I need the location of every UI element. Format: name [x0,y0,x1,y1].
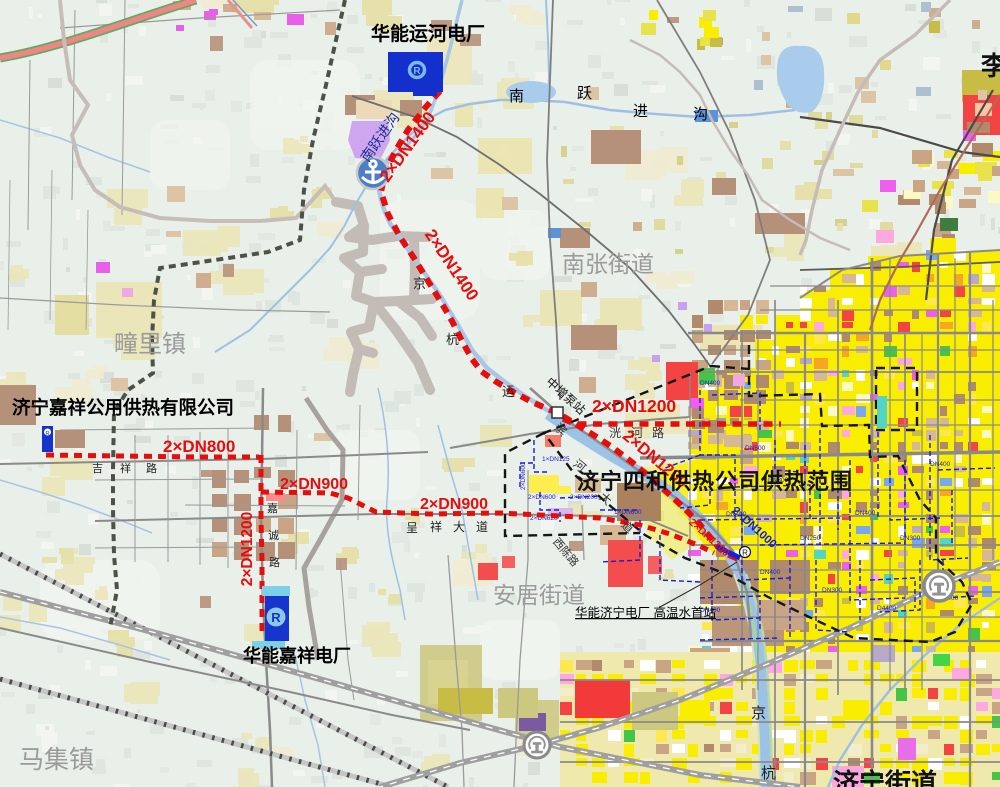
svg-text:路: 路 [269,556,280,569]
svg-text:路: 路 [146,462,157,475]
svg-text:运: 运 [502,384,515,399]
svg-text:京: 京 [751,705,766,722]
svg-text:1×DN600: 1×DN600 [614,509,642,516]
svg-text:济宁街道: 济宁街道 [833,768,937,787]
svg-text:疃里镇: 疃里镇 [114,331,186,358]
svg-text:DN400: DN400 [930,461,951,468]
svg-text:华能济宁电厂 高温水首站: 华能济宁电厂 高温水首站 [575,605,716,620]
svg-text:大: 大 [453,520,465,534]
svg-text:1×DN125: 1×DN125 [542,456,570,463]
svg-text:呈: 呈 [406,521,418,535]
svg-text:DN400: DN400 [855,510,876,517]
svg-text:DN400: DN400 [760,569,781,576]
svg-text:诚: 诚 [268,529,279,542]
svg-text:河: 河 [631,426,643,440]
svg-text:R: R [413,66,421,77]
svg-text:路: 路 [652,425,664,440]
svg-text:济宁四和供热公司供热范围: 济宁四和供热公司供热范围 [577,469,853,494]
svg-text:杭: 杭 [446,332,459,347]
svg-text:道: 道 [476,520,488,534]
svg-text:李: 李 [980,51,1000,81]
svg-text:沟: 沟 [693,106,708,123]
svg-text:济宁嘉祥公用供热有限公司: 济宁嘉祥公用供热有限公司 [12,397,234,418]
svg-text:马集镇: 马集镇 [19,746,94,774]
svg-text:南: 南 [509,88,524,105]
svg-text:R: R [742,549,748,558]
svg-text:京: 京 [413,276,426,291]
svg-text:杭: 杭 [761,765,776,782]
svg-text:DN500: DN500 [745,445,766,452]
svg-text:2×DN900: 2×DN900 [420,496,488,513]
svg-text:吉: 吉 [92,462,103,475]
svg-text:2×DN800: 2×DN800 [163,437,235,456]
svg-text:洸: 洸 [609,426,621,440]
svg-text:R: R [271,610,281,625]
svg-text:跃: 跃 [577,85,592,102]
svg-text:2×DN1200: 2×DN1200 [592,396,676,416]
svg-text:嘉: 嘉 [267,501,278,515]
svg-text:DN400: DN400 [700,380,721,387]
svg-text:DN250: DN250 [800,535,821,542]
svg-text:DN300: DN300 [822,587,843,594]
svg-text:祥: 祥 [430,520,442,534]
svg-text:DN300: DN300 [900,535,921,542]
svg-text:南张街道: 南张街道 [562,251,654,277]
svg-text:R: R [46,431,50,437]
svg-text:2×DN600: 2×DN600 [520,462,527,490]
svg-text:2×DN600: 2×DN600 [528,494,556,501]
svg-text:华能嘉祥电厂: 华能嘉祥电厂 [243,645,351,666]
svg-text:2×DN900: 2×DN900 [280,476,348,493]
svg-text:D4400: D4400 [877,605,897,612]
svg-text:2×DN200: 2×DN200 [570,494,598,501]
svg-text:进: 进 [633,103,648,120]
svg-text:祥: 祥 [120,461,131,475]
svg-text:2×DN1200: 2×DN1200 [239,512,256,587]
svg-text:华能运河电厂: 华能运河电厂 [371,22,485,45]
svg-text:安居街道: 安居街道 [493,582,585,608]
